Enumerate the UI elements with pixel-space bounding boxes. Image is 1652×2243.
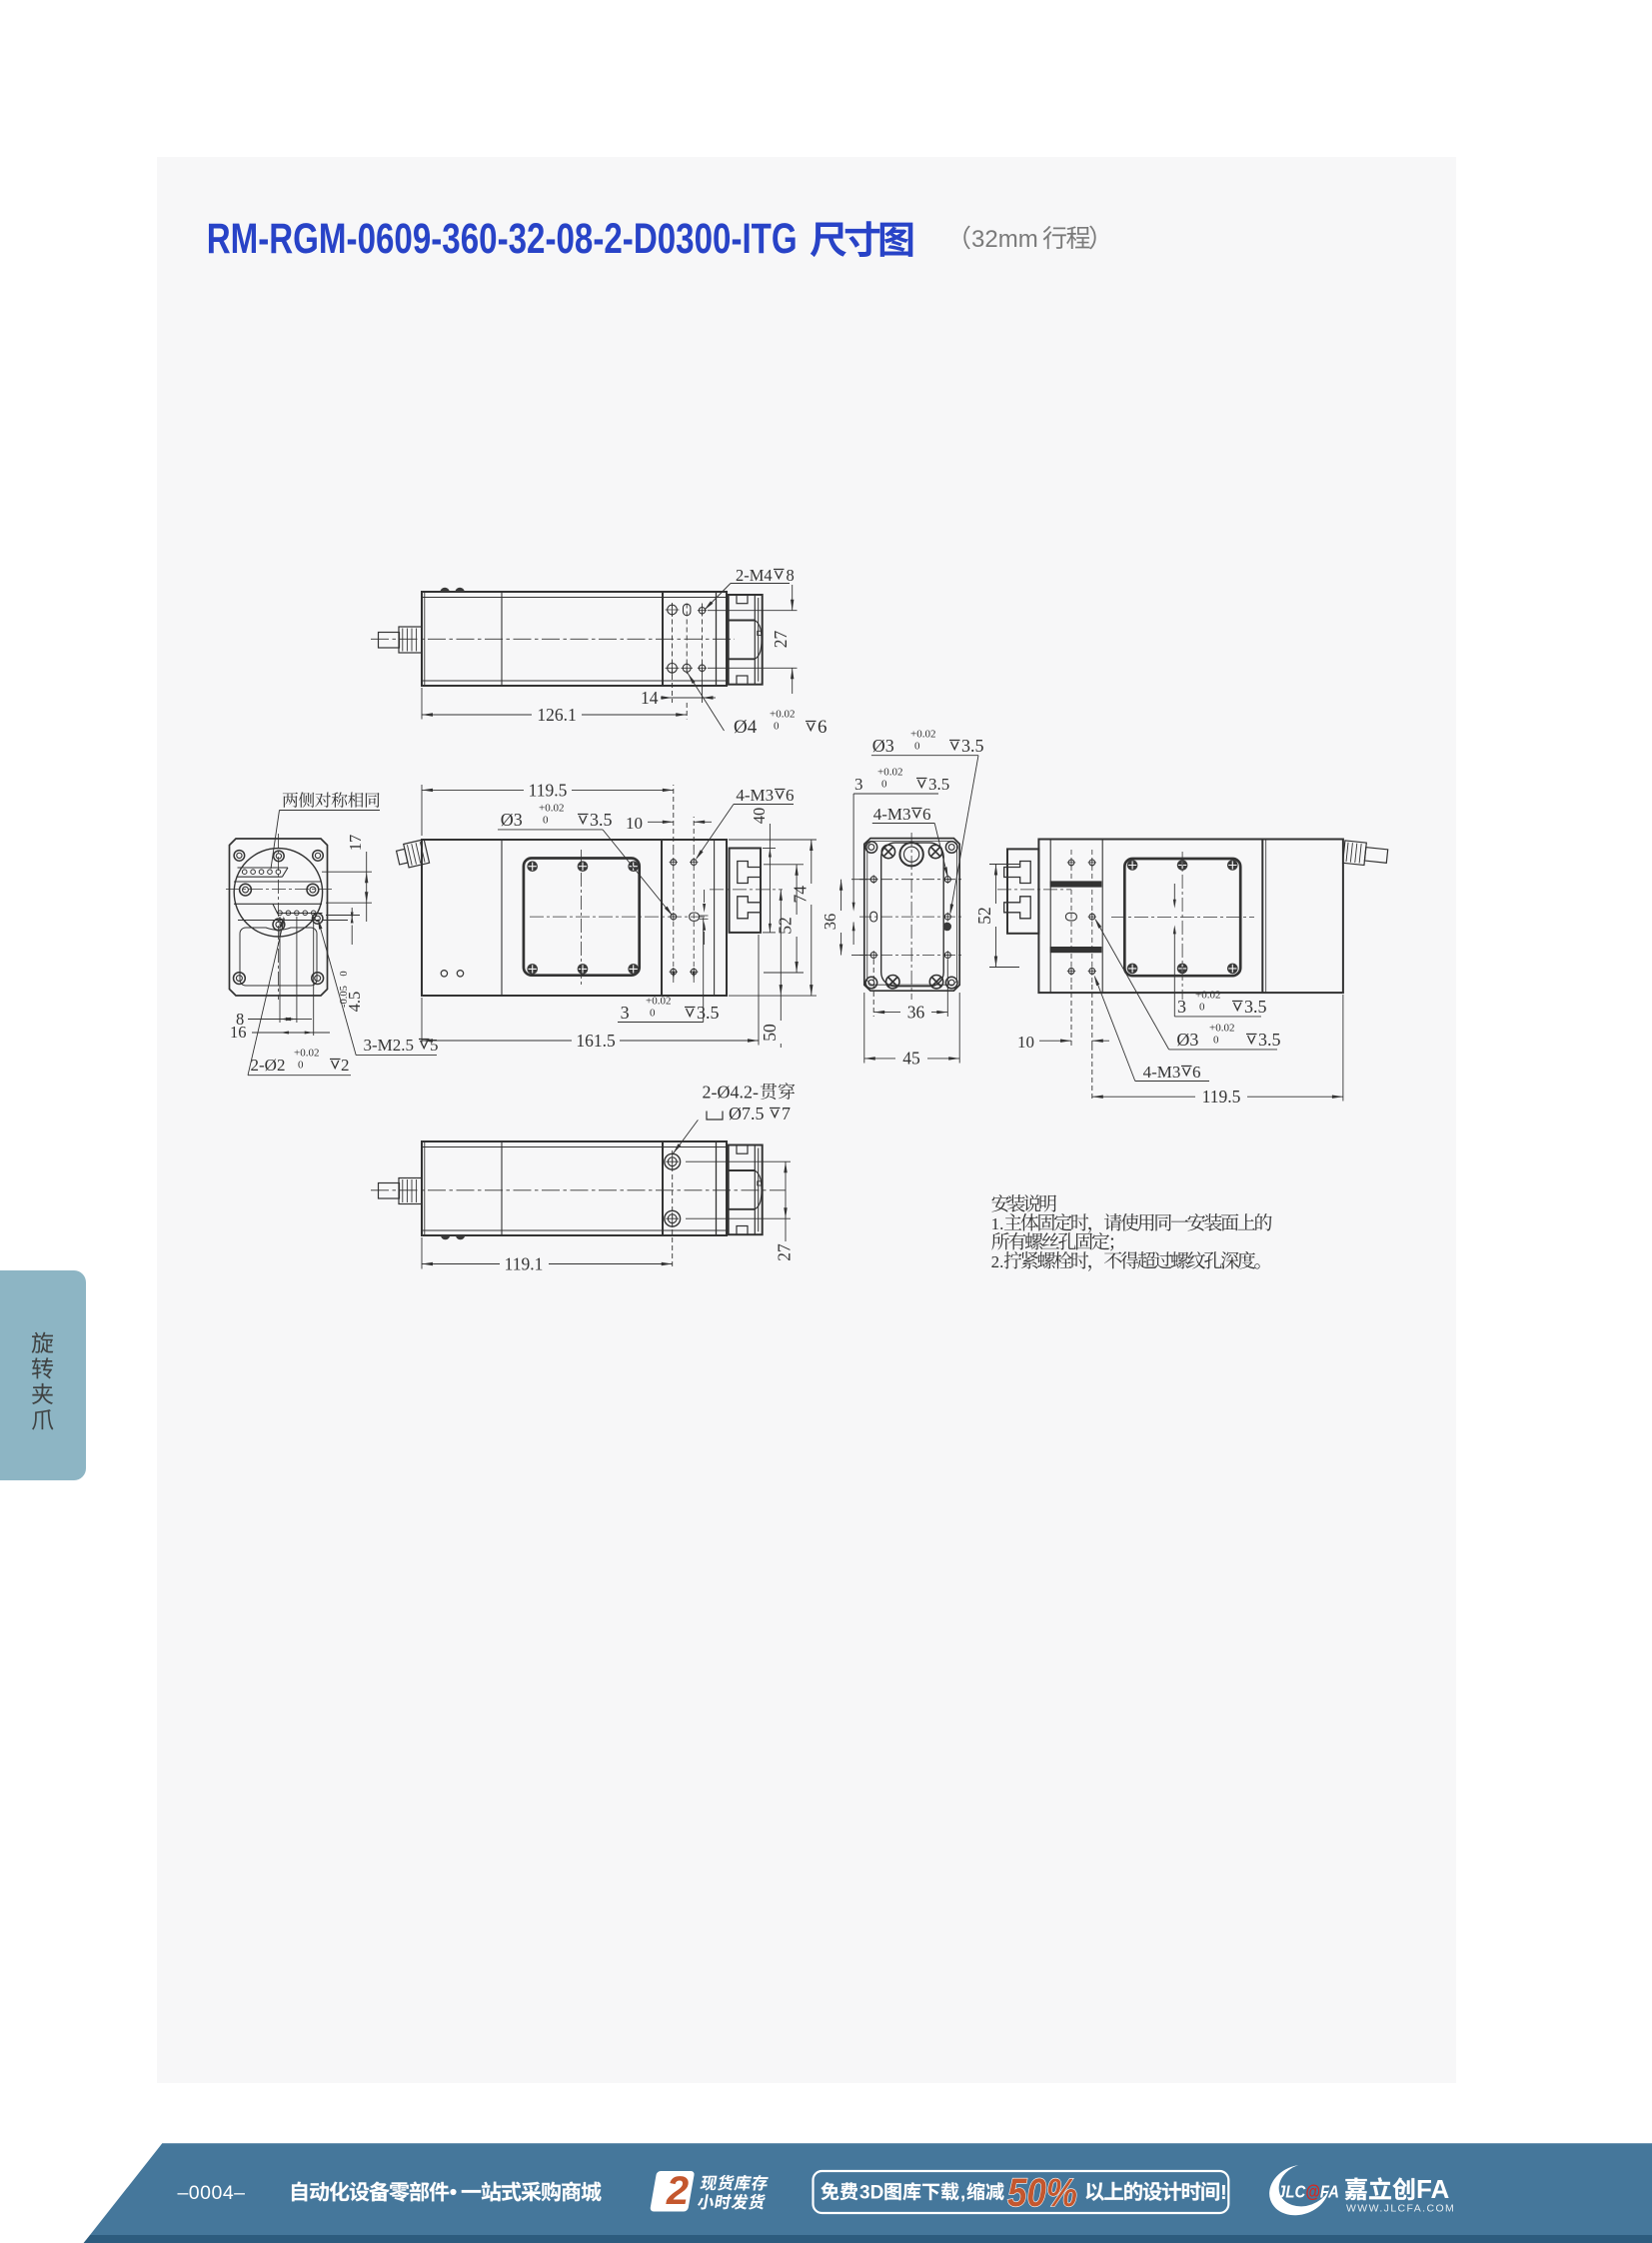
- svg-text:+0.02: +0.02: [646, 996, 671, 1008]
- svg-text:WWW.JLCFA.COM: WWW.JLCFA.COM: [1346, 2203, 1455, 2215]
- svg-text:Ø4: Ø4: [734, 717, 758, 738]
- svg-text:+0.02: +0.02: [539, 803, 564, 815]
- svg-text:–0004–: –0004–: [177, 2182, 245, 2204]
- svg-text:119.1: 119.1: [505, 1254, 544, 1274]
- svg-text:52: 52: [974, 907, 994, 925]
- svg-text:3.5: 3.5: [961, 736, 984, 756]
- svg-text:Ø3: Ø3: [501, 810, 523, 830]
- svg-text:6: 6: [922, 805, 931, 824]
- svg-text:3: 3: [854, 775, 863, 794]
- svg-text:161.5: 161.5: [576, 1031, 616, 1051]
- svg-text:Ø3: Ø3: [872, 736, 894, 756]
- svg-text:10: 10: [1017, 1033, 1034, 1052]
- svg-text:2: 2: [341, 1056, 350, 1075]
- svg-text:,: ,: [960, 2183, 965, 2204]
- svg-text:3.5: 3.5: [590, 810, 613, 830]
- svg-text:3-M2.5: 3-M2.5: [364, 1036, 415, 1055]
- svg-text:0: 0: [650, 1008, 656, 1020]
- svg-text:50: 50: [760, 1024, 780, 1042]
- svg-text:-0.05: -0.05: [339, 986, 350, 1008]
- svg-text:27: 27: [775, 1243, 795, 1261]
- svg-text:RM-RGM-0609-360-32-08-2-D0300-: RM-RGM-0609-360-32-08-2-D0300-ITG: [207, 215, 798, 263]
- svg-text:126.1: 126.1: [537, 705, 576, 725]
- svg-text:6: 6: [818, 717, 827, 738]
- svg-text:2-Ø4.2-: 2-Ø4.2-: [703, 1083, 760, 1103]
- svg-text:45: 45: [902, 1049, 920, 1069]
- svg-text:4-M3: 4-M3: [873, 805, 911, 824]
- svg-text:4-M3: 4-M3: [736, 786, 774, 805]
- svg-text:40: 40: [750, 808, 769, 825]
- svg-text:0: 0: [774, 721, 780, 733]
- svg-text:0: 0: [914, 741, 920, 753]
- svg-text:3D: 3D: [859, 2183, 883, 2204]
- svg-text:!: !: [1220, 2181, 1227, 2204]
- svg-text:10: 10: [626, 814, 643, 833]
- svg-text:4-M3: 4-M3: [1143, 1063, 1181, 1082]
- svg-text:+0.02: +0.02: [1195, 990, 1220, 1002]
- svg-text:+0.02: +0.02: [1209, 1023, 1234, 1035]
- svg-text:3.5: 3.5: [1244, 997, 1267, 1017]
- svg-text:JLC@FA: JLC@FA: [1277, 2182, 1339, 2202]
- svg-text:1.: 1.: [991, 1214, 1004, 1233]
- svg-text:+0.02: +0.02: [770, 709, 795, 721]
- svg-text:5: 5: [430, 1036, 439, 1055]
- svg-text:0: 0: [543, 815, 549, 827]
- svg-text:3: 3: [1177, 997, 1186, 1017]
- svg-text:+0.02: +0.02: [877, 767, 902, 779]
- svg-text:8: 8: [787, 566, 795, 585]
- svg-text:36: 36: [907, 1003, 925, 1023]
- svg-text:2-Ø2: 2-Ø2: [251, 1056, 286, 1075]
- svg-text:27: 27: [771, 631, 791, 649]
- svg-text:3: 3: [621, 1003, 630, 1023]
- svg-text:52: 52: [776, 917, 796, 935]
- svg-text:3.5: 3.5: [1258, 1030, 1281, 1050]
- svg-text:2: 2: [666, 2169, 689, 2213]
- svg-text:Ø3: Ø3: [1176, 1030, 1198, 1050]
- svg-text:17: 17: [346, 835, 365, 852]
- svg-text:0: 0: [1213, 1035, 1219, 1047]
- svg-text:6: 6: [786, 786, 795, 805]
- svg-text:50%: 50%: [1007, 2171, 1077, 2215]
- svg-text:0: 0: [339, 971, 350, 976]
- svg-text:32mm: 32mm: [971, 226, 1038, 253]
- svg-text:7: 7: [782, 1104, 791, 1123]
- svg-text:+0.02: +0.02: [910, 729, 935, 741]
- svg-text:119.5: 119.5: [529, 781, 568, 801]
- svg-text:FA: FA: [1416, 2174, 1449, 2204]
- svg-text:0: 0: [881, 779, 887, 791]
- svg-text:2-M4: 2-M4: [736, 566, 773, 585]
- svg-text:16: 16: [230, 1023, 247, 1042]
- svg-text:14: 14: [641, 688, 659, 708]
- svg-text:119.5: 119.5: [1202, 1087, 1241, 1107]
- svg-text:3.5: 3.5: [697, 1003, 720, 1023]
- svg-text:Ø7.5: Ø7.5: [729, 1104, 765, 1123]
- svg-text:2.: 2.: [991, 1252, 1004, 1271]
- svg-text:0: 0: [1199, 1002, 1205, 1014]
- svg-text:74: 74: [790, 886, 810, 904]
- svg-text:36: 36: [821, 914, 839, 931]
- svg-text:0: 0: [298, 1060, 304, 1072]
- svg-text:6: 6: [1192, 1063, 1201, 1082]
- svg-text:3.5: 3.5: [928, 775, 949, 794]
- svg-text:+0.02: +0.02: [294, 1048, 319, 1060]
